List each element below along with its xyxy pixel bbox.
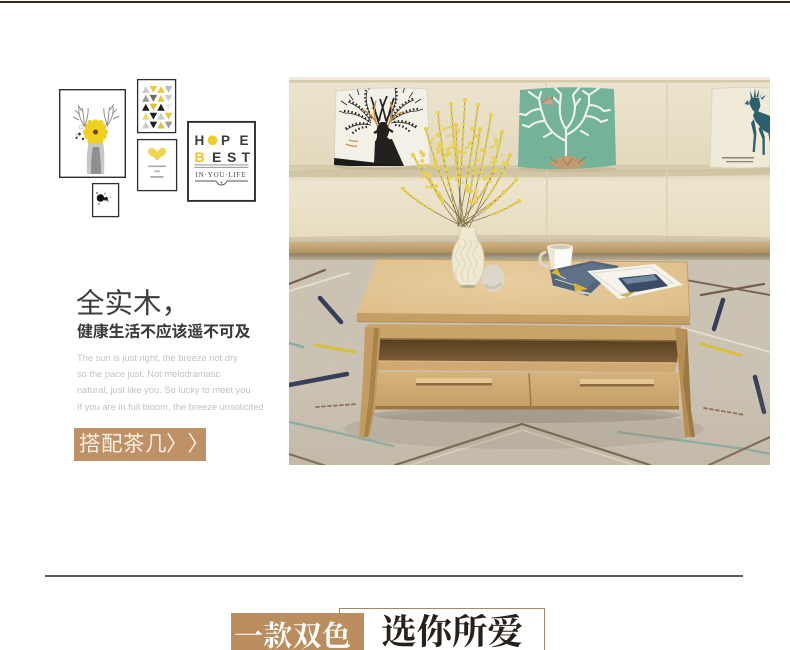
svg-text:E: E [212, 149, 221, 165]
svg-text:E: E [240, 133, 249, 148]
svg-text:P: P [221, 133, 230, 148]
svg-text:B: B [195, 149, 205, 165]
svg-text:T: T [242, 149, 251, 165]
svg-text:S: S [227, 149, 236, 165]
svg-text:IN·YOU·LIFE: IN·YOU·LIFE [196, 171, 247, 179]
svg-text:H: H [195, 133, 205, 148]
